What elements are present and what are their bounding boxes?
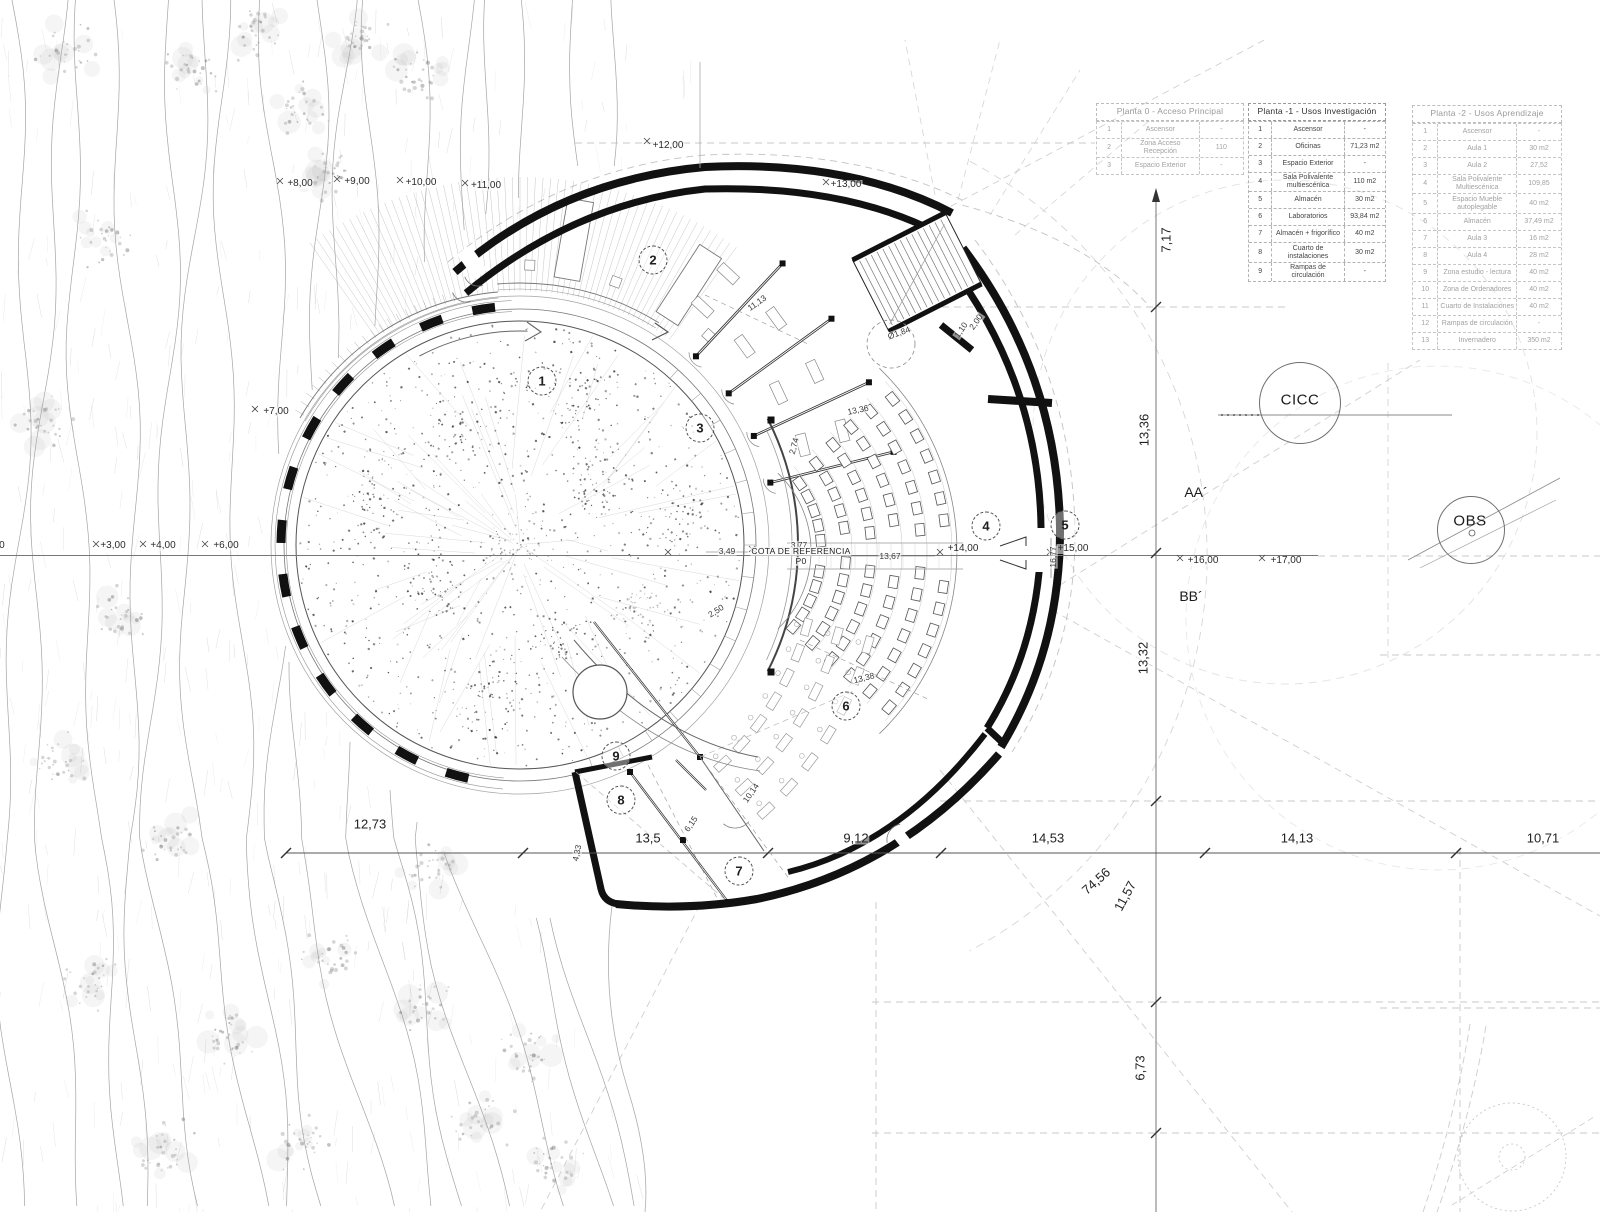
level-label: +8,00 [286, 179, 313, 189]
level-label: +17,00 [1270, 556, 1303, 566]
level-label: +3,00 [99, 541, 126, 551]
level-label: +15,00 [1057, 544, 1090, 554]
table-row: 12Rampas de circulación- [1413, 315, 1561, 332]
cicc-label: CICC [1280, 393, 1321, 408]
dim-label: 3,49 [718, 547, 737, 556]
table-row: 10Zona de Ordenadores40 m2 [1413, 281, 1561, 298]
dim-label: 10,71 [1526, 832, 1561, 845]
obs-circle [1437, 496, 1505, 564]
table-row: 9Zona estudio - lectura40 m2 [1413, 264, 1561, 281]
dim-label: 9,12 [842, 832, 869, 845]
level-label: +7,00 [262, 407, 289, 417]
obs-label: OBS [1452, 514, 1487, 529]
level-label: +10,00 [405, 178, 438, 188]
level-label: +6,00 [212, 541, 239, 551]
room-marker-5: 5 [1051, 511, 1080, 540]
table-row: 6Laboratorios93,84 m2 [1249, 208, 1385, 225]
room-marker-9: 9 [602, 742, 631, 771]
table-row: 7Almacén + frigorífico40 m2 [1249, 225, 1385, 242]
table-rows: 1Ascensor- 2Zona Acceso Recepción110 3Es… [1096, 121, 1244, 176]
dim-label: 14,13 [1280, 832, 1315, 845]
table-row: 5Almacén30 m2 [1249, 191, 1385, 208]
table-row: 3Espacio Exterior- [1249, 155, 1385, 172]
table-row: 9Rampas de circulación- [1249, 262, 1385, 282]
dim-label: 13,5 [634, 832, 661, 845]
level-label: +13,00 [830, 180, 863, 190]
table-title: Planta 0 - Acceso Principal [1096, 103, 1244, 121]
table-row: 2Zona Acceso Recepción110 [1097, 138, 1243, 158]
table-title: Planta -2 - Usos Aprendizaje [1412, 105, 1562, 123]
level-label: +14,00 [947, 544, 980, 554]
dim-label: 12,73 [353, 818, 388, 831]
level-label: +16,00 [1187, 556, 1220, 566]
legend-table-planta-minus2: Planta -2 - Usos Aprendizaje 1Ascensor- … [1412, 105, 1562, 350]
room-marker-3: 3 [686, 414, 715, 443]
table-row: 8Cuarto de instalaciones30 m2 [1249, 242, 1385, 262]
dim-label: 6,73 [1134, 1054, 1147, 1081]
table-row: 6Almacén37,49 m2 [1413, 213, 1561, 230]
table-row: 4Sala Polivalente multiescénica110 m2 [1249, 172, 1385, 192]
table-row: 3Espacio Exterior- [1097, 157, 1243, 174]
level-label: +9,00 [343, 177, 370, 187]
dim-label: 13,67 [878, 552, 901, 561]
table-title: Planta -1 - Usos Investigación [1248, 103, 1386, 121]
table-row: 1Ascensor- [1097, 121, 1243, 138]
legend-table-planta-minus1: Planta -1 - Usos Investigación 1Ascensor… [1248, 103, 1386, 282]
table-rows: 1Ascensor- 2Aula 130 m2 3Aula 227,52 4Sa… [1412, 123, 1562, 350]
room-marker-6: 6 [832, 692, 861, 721]
room-marker-8: 8 [607, 786, 636, 815]
table-row: 4Sala Polivalente Multiescénica109,85 [1413, 174, 1561, 194]
level-label: +11,00 [470, 181, 502, 191]
section-aa-label: AA´ [1183, 485, 1208, 499]
table-row: 3Aula 227,52 [1413, 157, 1561, 174]
dim-label: 13,36 [1138, 413, 1151, 448]
table-row: 2Aula 130 m2 [1413, 140, 1561, 157]
level-label: +4,00 [149, 541, 176, 551]
site-plan-sheet: +2,00 +3,00 +4,00 +6,00 +7,00 +8,00 +9,0… [0, 0, 1600, 1212]
table-row: 1Ascensor- [1413, 123, 1561, 140]
dim-label: 14,53 [1031, 832, 1066, 845]
dim-label: 13,32 [1137, 641, 1150, 676]
legend-table-planta-0: Planta 0 - Acceso Principal 1Ascensor- 2… [1096, 103, 1244, 175]
dim-label: 16,77 [1049, 545, 1058, 568]
table-row: 2Oficinas71,23 m2 [1249, 138, 1385, 155]
table-row: 7Aula 316 m2 [1413, 230, 1561, 247]
table-row: 5Espacio Mueble autoplegable40 m2 [1413, 193, 1561, 213]
table-row: 8Aula 428 m2 [1413, 247, 1561, 264]
table-rows: 1Ascensor- 2Oficinas71,23 m2 3Espacio Ex… [1248, 121, 1386, 283]
cota-referencia-level: P0 [795, 557, 808, 566]
dim-label: 7,17 [1160, 226, 1173, 253]
table-row: 11Cuarto de Instalaciones40 m2 [1413, 298, 1561, 315]
level-label: +12,00 [652, 141, 685, 151]
room-marker-1: 1 [528, 367, 557, 396]
cota-referencia-label: COTA DE REFERENCIA [750, 547, 851, 556]
level-label: +2,00 [0, 541, 6, 551]
section-bb-label: BB´ [1178, 589, 1203, 603]
table-row: 13Invernadero350 m2 [1413, 332, 1561, 349]
table-row: 1Ascensor- [1249, 121, 1385, 138]
room-marker-2: 2 [639, 246, 668, 275]
room-marker-7: 7 [725, 857, 754, 886]
room-marker-4: 4 [972, 512, 1001, 541]
